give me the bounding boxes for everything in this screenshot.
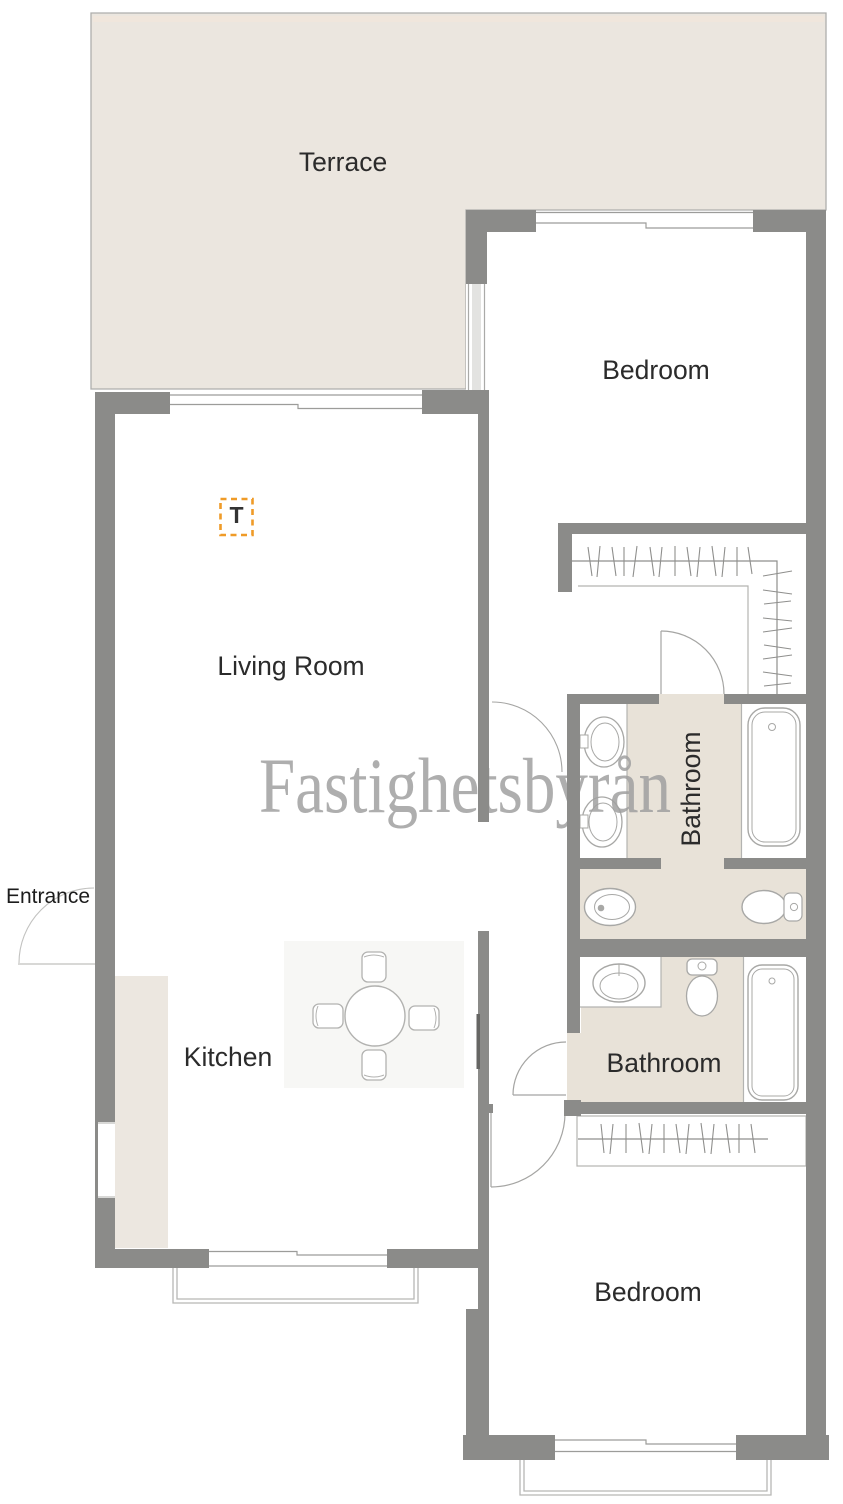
svg-text:Bathroom: Bathroom: [676, 732, 706, 847]
svg-text:Living Room: Living Room: [217, 651, 364, 681]
svg-text:T: T: [229, 502, 243, 528]
svg-text:Terrace: Terrace: [299, 147, 387, 177]
svg-text:Bathroom: Bathroom: [607, 1048, 722, 1078]
svg-text:Kitchen: Kitchen: [184, 1042, 272, 1072]
svg-text:Entrance: Entrance: [6, 885, 90, 908]
svg-text:Fastighetsbyrån: Fastighetsbyrån: [259, 742, 671, 829]
svg-text:Bedroom: Bedroom: [602, 355, 710, 385]
svg-text:Bedroom: Bedroom: [594, 1277, 702, 1307]
